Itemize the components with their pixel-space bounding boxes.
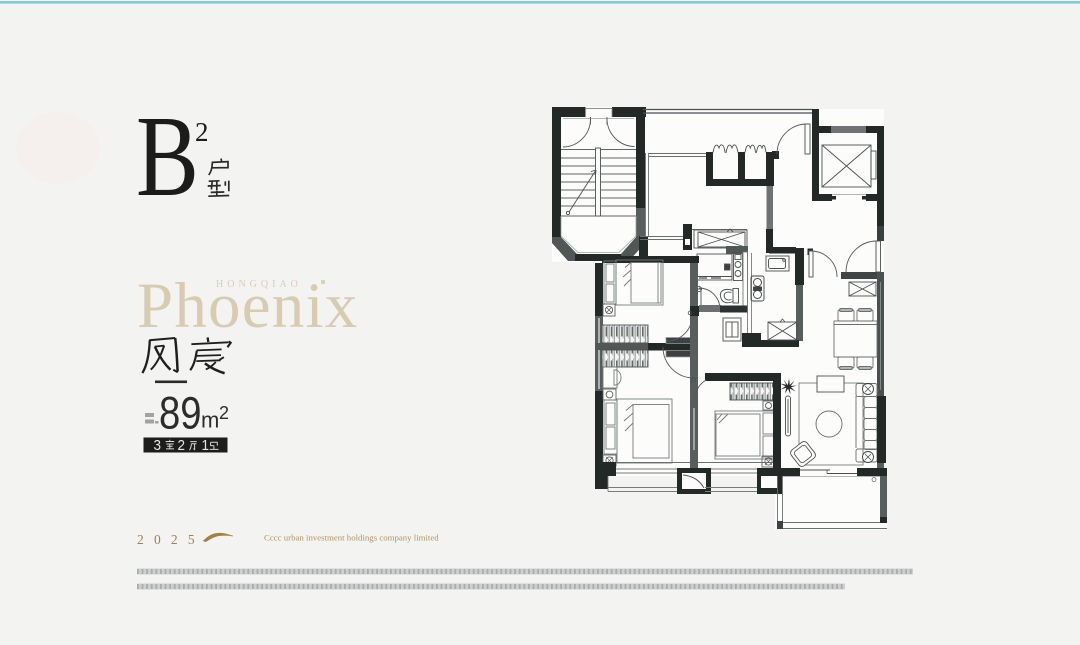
svg-text:m: m xyxy=(201,408,219,433)
svg-text:2: 2 xyxy=(178,437,186,454)
svg-text:89: 89 xyxy=(159,388,202,439)
svg-text:2: 2 xyxy=(195,117,209,147)
svg-text:2025: 2025 xyxy=(137,532,205,547)
svg-text:B: B xyxy=(136,92,199,220)
svg-text:1: 1 xyxy=(202,437,210,454)
svg-text:2: 2 xyxy=(219,403,229,423)
svg-text:Cccc urban investment holdings: Cccc urban investment holdings company l… xyxy=(264,533,439,543)
svg-text:3: 3 xyxy=(154,437,162,454)
svg-text:HONGQIAO: HONGQIAO xyxy=(216,279,302,290)
